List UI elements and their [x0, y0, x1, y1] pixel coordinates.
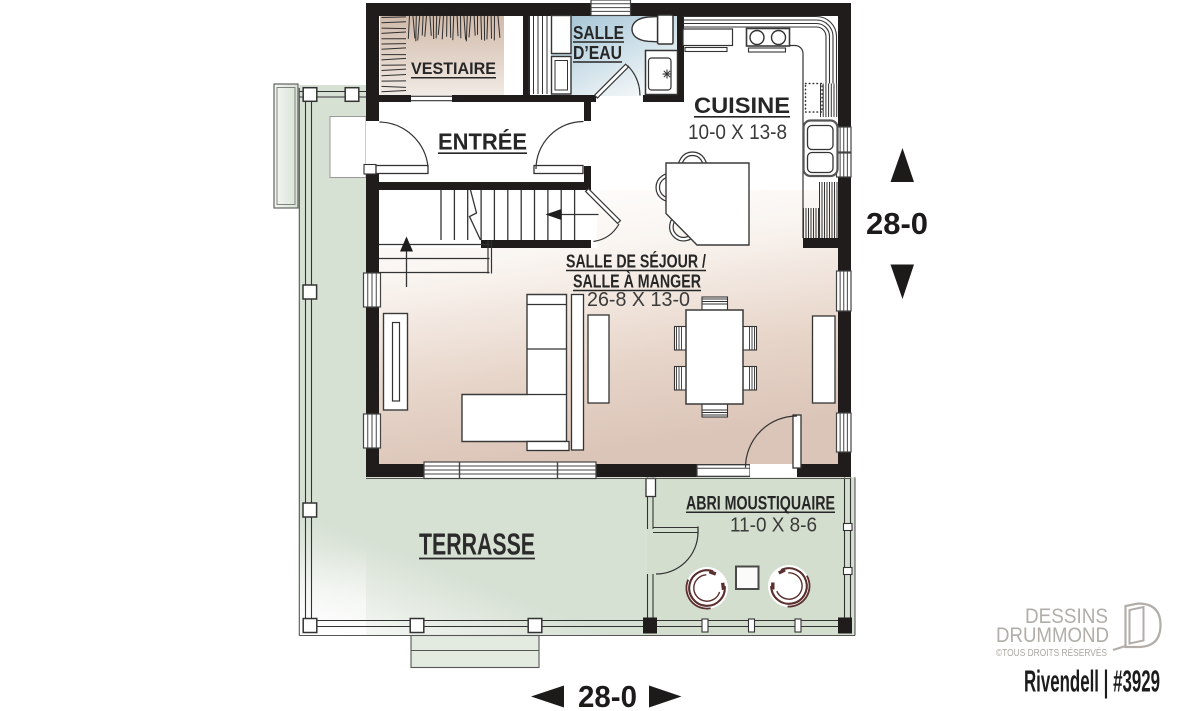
- svg-text:©TOUS DROITS RÉSERVÉS: ©TOUS DROITS RÉSERVÉS: [996, 646, 1107, 659]
- svg-text:Rivendell | #3929: Rivendell | #3929: [1024, 664, 1160, 699]
- svg-text:ENTRÉE: ENTRÉE: [438, 128, 527, 155]
- svg-text:SALLE DE SÉJOUR /: SALLE DE SÉJOUR /: [566, 251, 706, 272]
- svg-text:VESTIAIRE: VESTIAIRE: [411, 59, 496, 78]
- svg-text:28-0: 28-0: [578, 679, 637, 711]
- svg-text:ABRI MOUSTIQUAIRE: ABRI MOUSTIQUAIRE: [686, 494, 835, 515]
- svg-text:26-8 X 13-0: 26-8 X 13-0: [587, 289, 690, 311]
- svg-text:10-0 X 13-8: 10-0 X 13-8: [688, 121, 787, 144]
- svg-text:TERRASSE: TERRASSE: [419, 527, 535, 562]
- svg-text:11-0 X 8-6: 11-0 X 8-6: [730, 514, 817, 537]
- svg-text:CUISINE: CUISINE: [694, 93, 790, 118]
- svg-text:D’EAU: D’EAU: [573, 43, 622, 63]
- svg-text:SALLE: SALLE: [573, 23, 624, 43]
- svg-text:28-0: 28-0: [866, 206, 928, 241]
- svg-text:DRUMMOND: DRUMMOND: [996, 624, 1109, 647]
